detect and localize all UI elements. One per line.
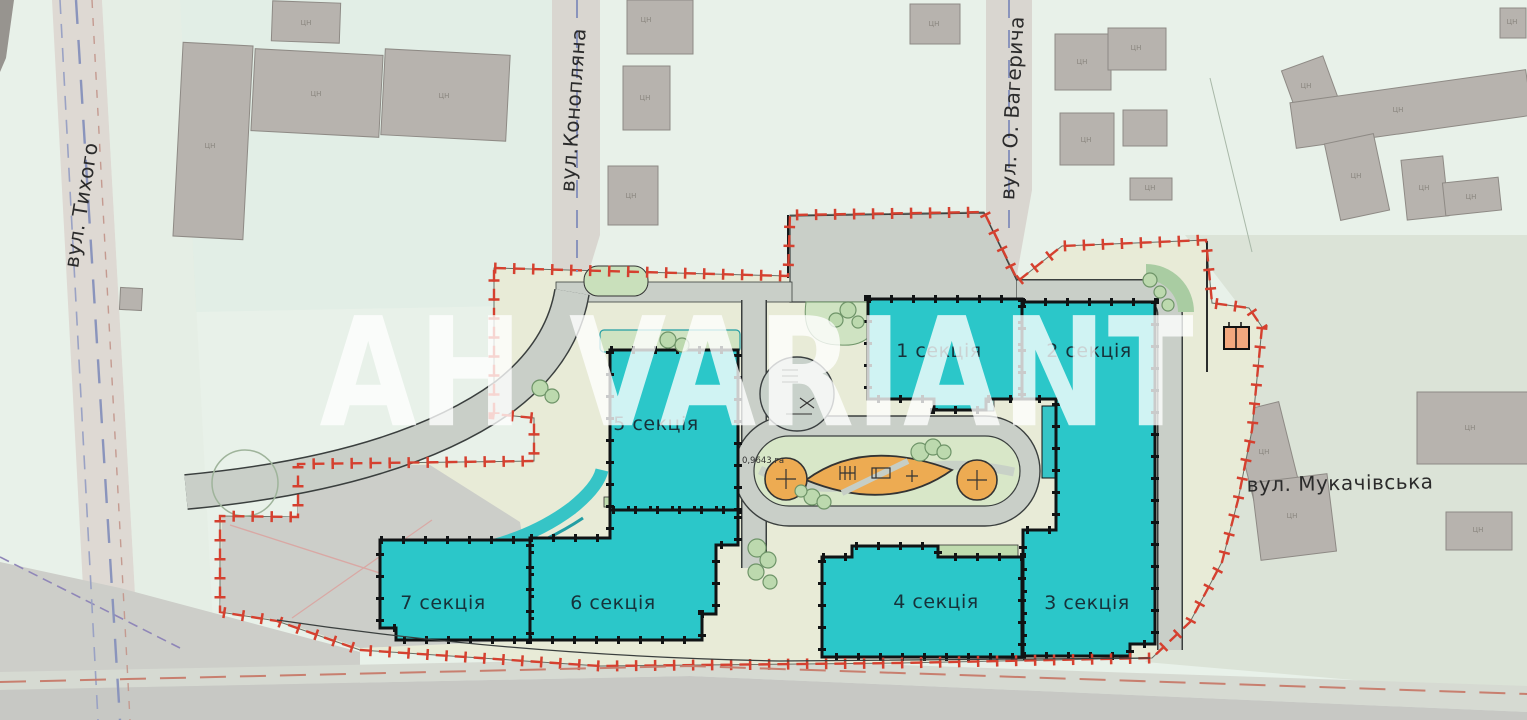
bush	[660, 332, 676, 348]
bush	[675, 338, 689, 352]
bush	[760, 552, 776, 568]
bush	[829, 313, 843, 327]
existing-building	[1500, 8, 1526, 38]
existing-building	[1446, 512, 1512, 550]
existing-building	[1252, 474, 1337, 561]
existing-building	[1108, 28, 1166, 70]
existing-building	[1060, 113, 1114, 165]
bush	[763, 575, 777, 589]
section-5-building	[610, 350, 738, 510]
bush	[1162, 299, 1174, 311]
bush	[1143, 273, 1157, 287]
existing-building	[173, 42, 253, 239]
playground-gray-circle	[760, 357, 834, 431]
existing-building	[1123, 110, 1167, 146]
bush	[937, 445, 951, 459]
bush	[817, 495, 831, 509]
existing-building	[1417, 392, 1527, 464]
existing-building	[1055, 34, 1111, 90]
cyan-strip-east	[1042, 406, 1055, 478]
bush	[748, 564, 764, 580]
existing-building	[1130, 178, 1172, 200]
existing-building	[1401, 156, 1449, 220]
bush	[852, 316, 864, 328]
existing-building	[271, 1, 340, 43]
bush	[1154, 286, 1166, 298]
existing-building	[910, 4, 960, 44]
section-1-building	[868, 299, 1022, 410]
existing-building	[608, 166, 658, 225]
existing-building	[1442, 177, 1501, 216]
site-plan: вул. Тихоговул.Коноплянавул. О. Вагерича…	[0, 0, 1527, 720]
section-4-building	[822, 546, 1022, 657]
existing-building	[381, 49, 510, 141]
section-7-building	[380, 540, 530, 640]
map-svg	[0, 0, 1527, 720]
existing-building	[623, 66, 670, 130]
existing-building	[119, 287, 142, 310]
bush	[545, 389, 559, 403]
existing-building	[251, 49, 383, 138]
bush	[840, 302, 856, 318]
bush	[795, 485, 807, 497]
existing-building	[627, 0, 693, 54]
parking-north	[790, 213, 1017, 302]
